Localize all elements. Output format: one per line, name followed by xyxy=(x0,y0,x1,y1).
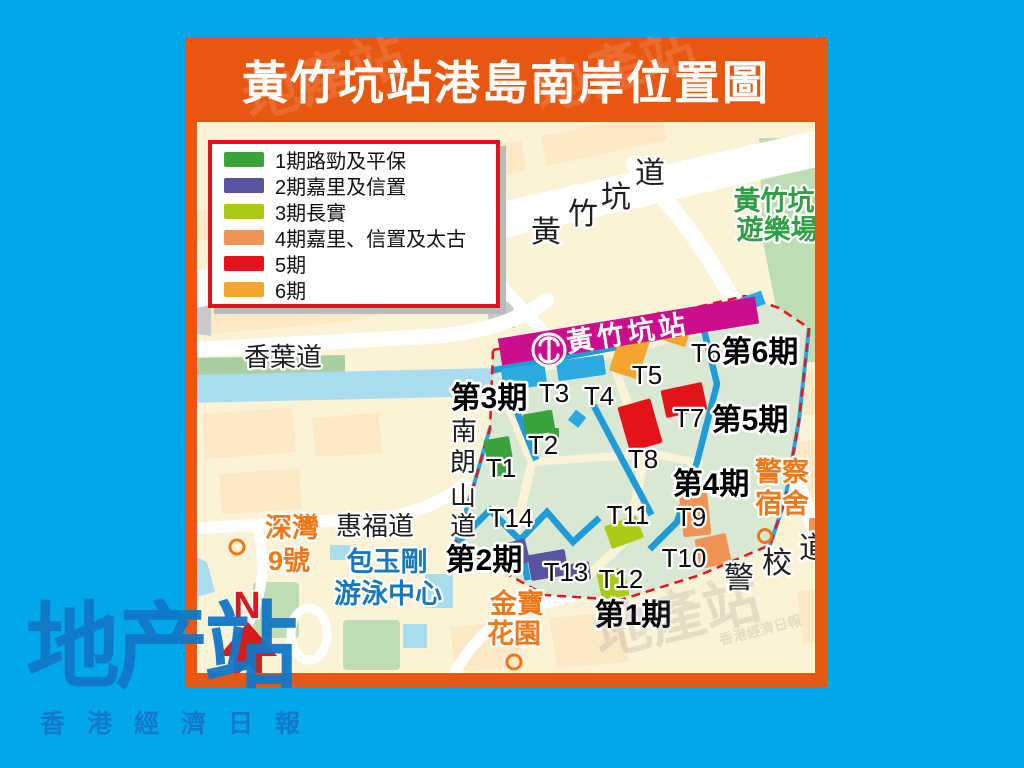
legend-label: 1期路勁及平保 xyxy=(275,145,406,174)
map-panel: 地產站 地產站 黃竹坑站港島南岸位置圖 xyxy=(185,37,827,687)
map-title-bar: 地產站 地產站 黃竹坑站港島南岸位置圖 xyxy=(185,37,827,122)
road-label-char: 南 xyxy=(451,416,477,446)
road-label-char: 山 xyxy=(450,481,476,511)
tower-label: T3 xyxy=(539,378,569,408)
tower-label: T14 xyxy=(489,503,534,533)
phase-3-label: 第3期 xyxy=(451,381,528,415)
tower-label: T8 xyxy=(628,444,658,474)
legend-item: 1期路勁及平保 xyxy=(224,146,496,172)
wai-fuk-road-label: 惠福道 xyxy=(336,511,414,541)
road-label-char: 坑 xyxy=(601,181,631,214)
legend-swatch xyxy=(224,256,264,271)
legend-label: 2期嘉里及信置 xyxy=(275,171,406,200)
legend-swatch xyxy=(224,152,264,167)
sham-wan-9-label: 9號 xyxy=(268,546,310,576)
kampo-garden-label: 花園 xyxy=(487,619,541,649)
tower-label: T9 xyxy=(676,502,706,532)
tower-label: T4 xyxy=(584,381,614,411)
tower-label: T11 xyxy=(607,500,650,530)
legend-item: 3期長實 xyxy=(224,198,496,224)
tower-label: T10 xyxy=(662,543,707,573)
road-label-char: 校 xyxy=(762,547,792,580)
road-label-char: 道 xyxy=(799,532,815,565)
tower-label: T5 xyxy=(632,360,662,390)
phase-6-label: 第6期 xyxy=(722,335,799,369)
legend-swatch xyxy=(224,204,264,219)
legend-label: 5期 xyxy=(275,249,306,278)
legend-item: 5期 xyxy=(224,250,496,276)
phase-2-label: 第2期 xyxy=(446,543,523,577)
legend: 1期路勁及平保 2期嘉里及信置 3期長實 4期嘉里、信置及太古 5期 xyxy=(208,140,500,308)
legend-item: 4期嘉里、信置及太古 xyxy=(224,224,496,250)
map-canvas: 黃竹坑站 黃 竹 坑 道 香葉道 南 朗 山 道 惠福道 警 校 道 xyxy=(197,122,815,673)
playground-label: 黃竹坑 xyxy=(734,185,815,216)
road-label-char: 道 xyxy=(450,511,476,541)
road-label-char: 道 xyxy=(635,157,665,190)
legend-swatch xyxy=(224,178,264,193)
sham-wan-9-label: 深灣 xyxy=(265,513,319,543)
legend-label: 4期嘉里、信置及太古 xyxy=(275,223,466,252)
pool-label: 包玉剛 xyxy=(347,546,428,577)
road-label-char: 朗 xyxy=(450,447,476,477)
legend-label: 3期長實 xyxy=(275,197,346,226)
tower-label: T2 xyxy=(528,430,558,460)
police-quarters-label: 宿舍 xyxy=(755,488,810,519)
site-logo: 地产站 xyxy=(26,600,293,694)
tower-label: T6 xyxy=(691,338,721,368)
phase-5-label: 第5期 xyxy=(712,403,789,437)
phase-4-label: 第4期 xyxy=(673,467,750,501)
playground-label: 遊樂場 xyxy=(737,214,816,245)
legend-swatch xyxy=(224,230,264,245)
road-label-char: 竹 xyxy=(568,198,598,231)
tower-label: T13 xyxy=(544,557,589,587)
site-logo-subtitle: 香港經濟日報 xyxy=(40,704,322,740)
road-label-char: 黃 xyxy=(531,216,561,249)
tower-label: T1 xyxy=(486,453,516,483)
police-quarters-label: 警察 xyxy=(755,456,810,487)
page-background: 地產站 地產站 黃竹坑站港島南岸位置圖 xyxy=(0,0,1024,768)
tower-label: T7 xyxy=(674,403,704,433)
legend-swatch xyxy=(224,282,264,297)
mtr-logo-icon xyxy=(533,334,565,366)
kampo-garden-label: 金寶 xyxy=(489,588,544,619)
pool-label: 游泳中心 xyxy=(334,579,442,609)
tower-label: T12 xyxy=(599,564,644,594)
legend-item: 6期 xyxy=(224,276,496,302)
legend-label: 6期 xyxy=(275,275,306,304)
legend-item: 2期嘉里及信置 xyxy=(224,172,496,198)
heung-yip-road-label: 香葉道 xyxy=(244,342,322,372)
